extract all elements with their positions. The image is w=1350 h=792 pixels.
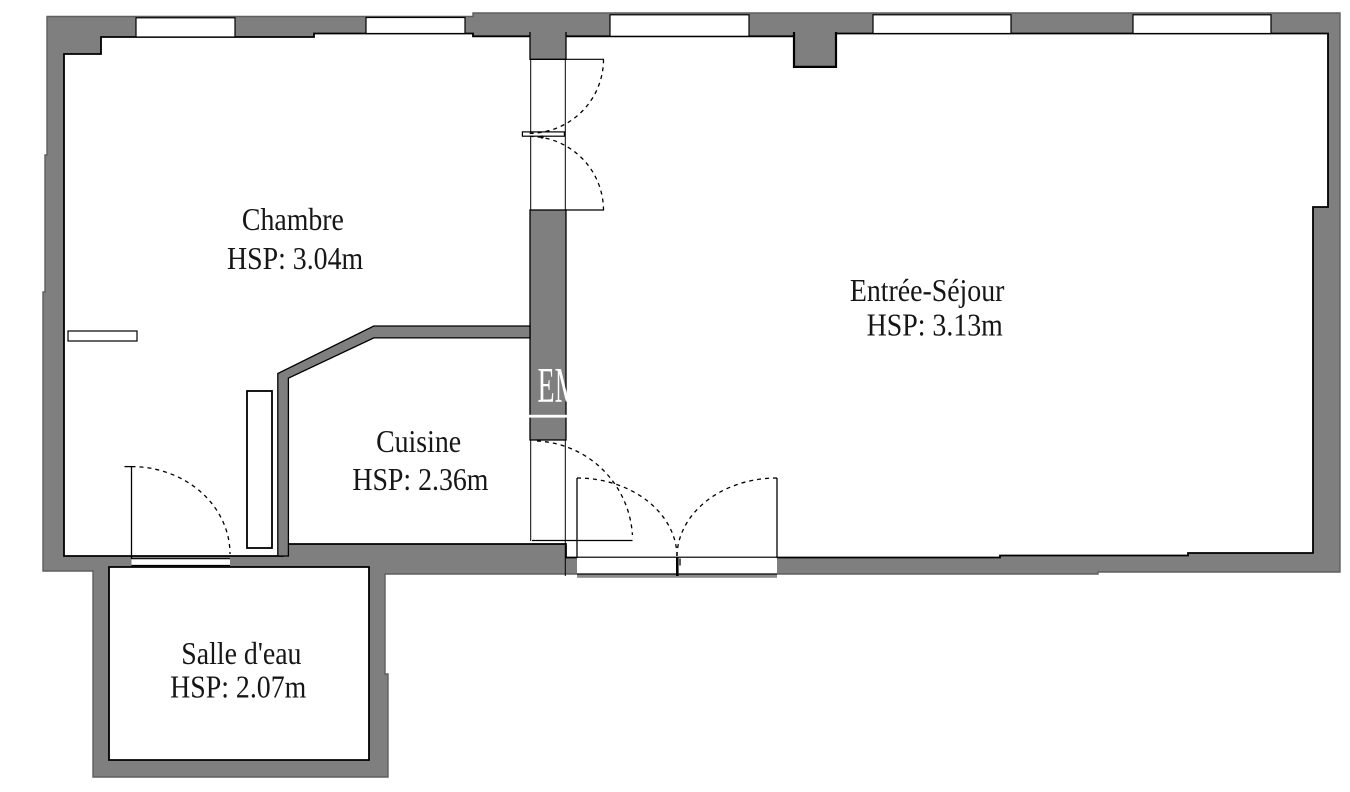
svg-text:HSP: 3.04m: HSP: 3.04m [227,241,363,276]
svg-text:Cuisine: Cuisine [376,424,461,459]
svg-text:Chambre: Chambre [242,202,344,237]
svg-text:HSP: 2.36m: HSP: 2.36m [352,462,488,497]
svg-text:EM: EM [538,357,580,413]
svg-text:Entrée-Séjour: Entrée-Séjour [850,273,1005,308]
svg-text:Salle d'eau: Salle d'eau [181,636,301,671]
svg-text:HSP: 2.07m: HSP: 2.07m [170,670,306,705]
svg-text:HSP: 3.13m: HSP: 3.13m [867,308,1003,343]
